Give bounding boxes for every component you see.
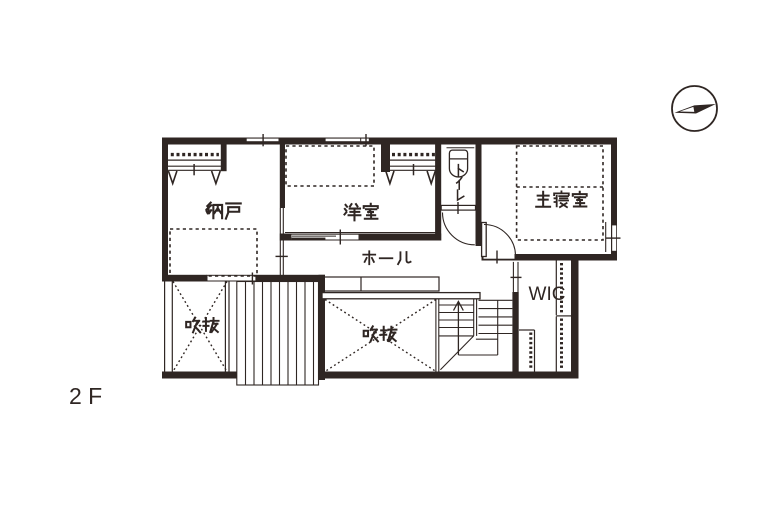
svg-text:2 F: 2 F: [69, 383, 102, 409]
svg-text:WIC: WIC: [529, 284, 566, 305]
